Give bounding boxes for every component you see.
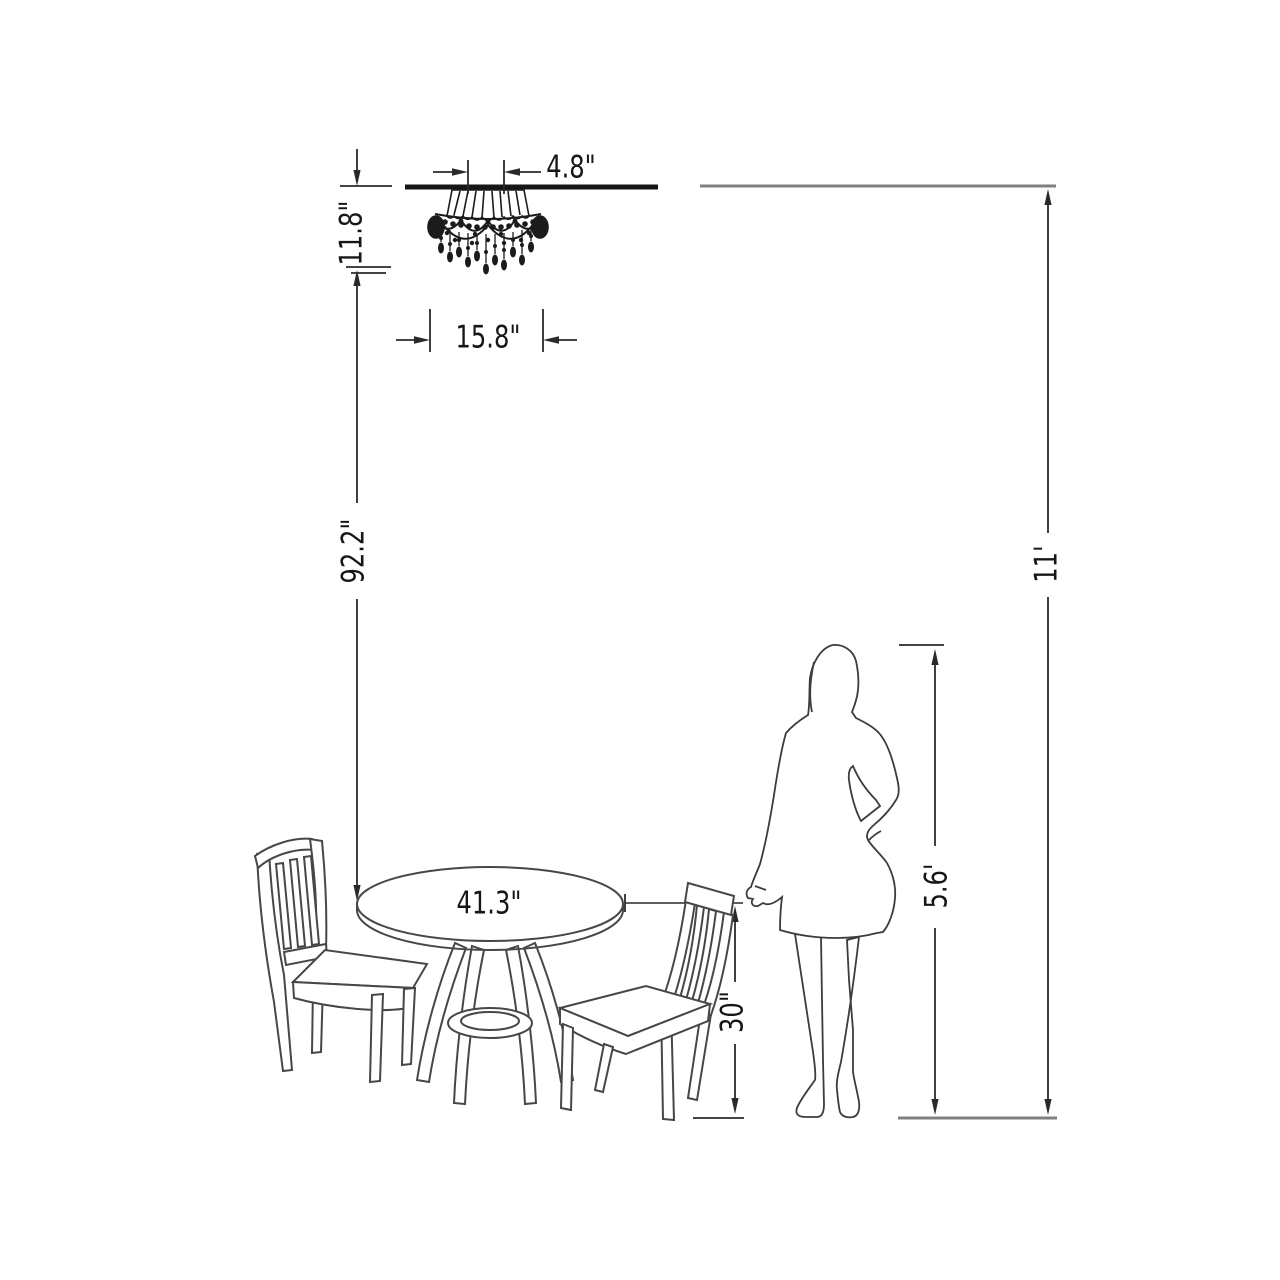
chandelier-drawing [428,190,548,275]
diagram-linework [0,0,1280,1280]
dim-label-canopy-width: 4.8" [546,153,596,184]
ceiling-line [405,186,1056,187]
chair-left-drawing [255,839,427,1082]
dim-label-ceiling-height: 11' [1032,545,1063,582]
dimension-diagram: 4.8" 11.8" 15.8" 92.2" 41.3" 30" 5.6' 11… [0,0,1280,1280]
dim-label-fixture-to-table: 92.2" [339,519,370,584]
dim-fixture-to-table [353,286,360,901]
dim-label-fixture-height: 11.8" [337,201,368,266]
dim-label-fixture-width: 15.8" [456,323,521,354]
dim-ceiling-height [1044,189,1051,1115]
dim-label-table-diameter: 41.3" [457,889,522,920]
dim-label-person-height: 5.6' [922,863,953,908]
dim-label-table-height: 30" [718,991,749,1033]
woman-silhouette [747,645,899,1117]
